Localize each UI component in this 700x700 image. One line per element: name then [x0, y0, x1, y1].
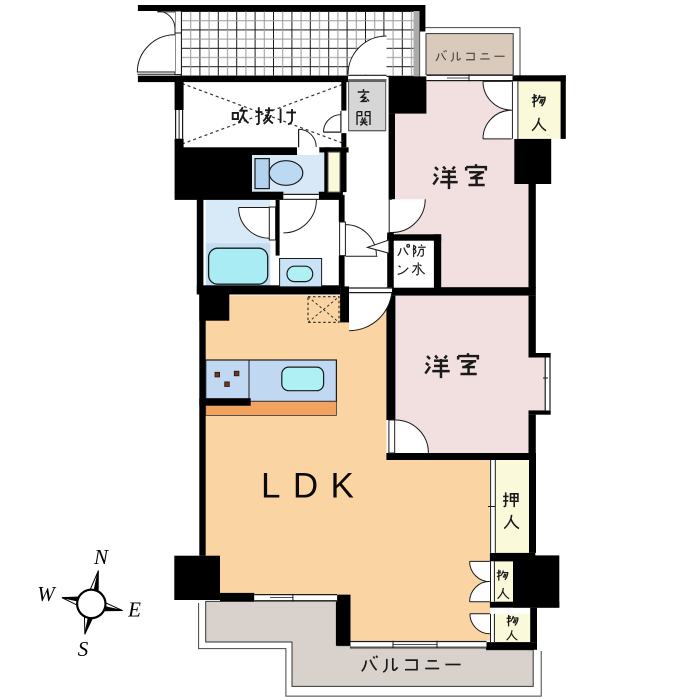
svg-text:E: E: [127, 598, 141, 622]
svg-text:LDK: LDK: [261, 467, 366, 506]
svg-text:W: W: [37, 582, 57, 606]
svg-text:S: S: [78, 637, 89, 661]
svg-text:N: N: [93, 545, 109, 569]
